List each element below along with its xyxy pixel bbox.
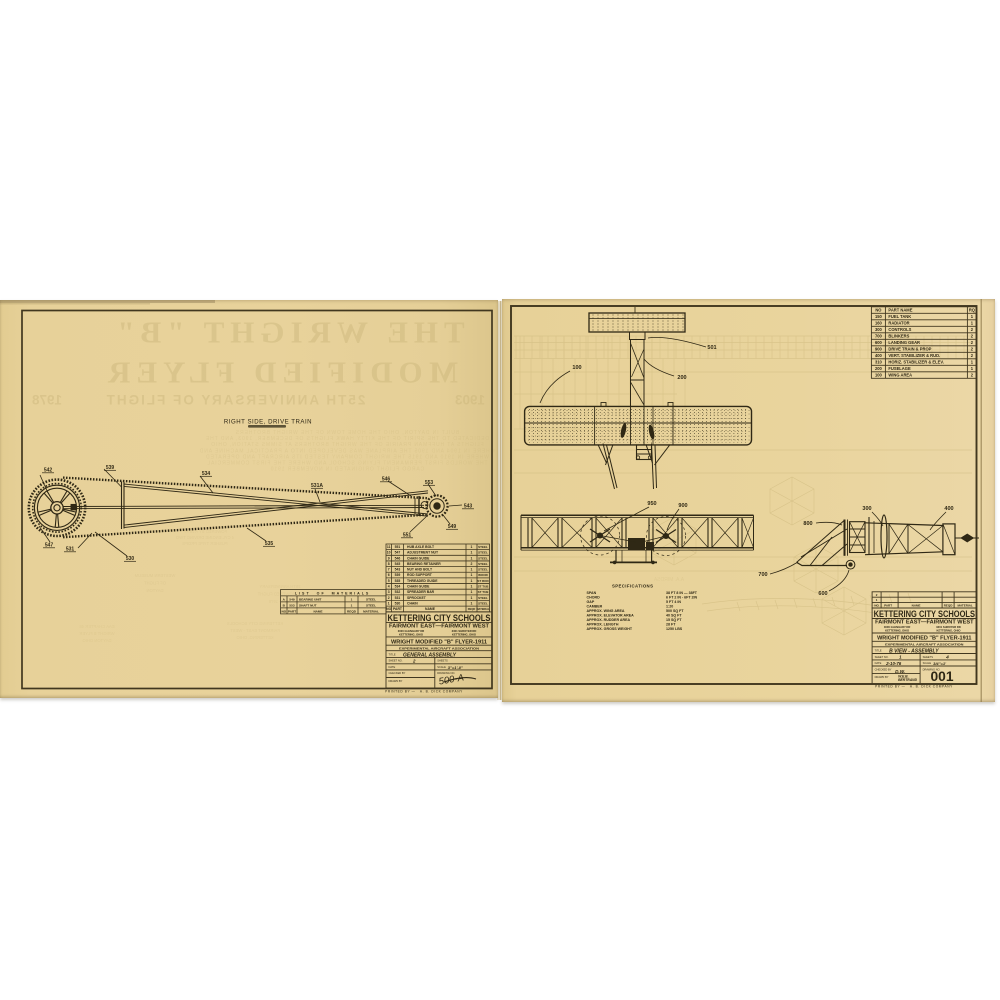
svg-text:549: 549 — [289, 597, 294, 601]
svg-text:1: 1 — [971, 360, 974, 365]
svg-text:WHERE IN 1904 AND 1905 THE AIR: WHERE IN 1904 AND 1905 THE AIRPLANE WAS … — [199, 448, 495, 454]
svg-text:FUSELAGE: FUSELAGE — [888, 366, 911, 371]
svg-text:STEEL: STEEL — [478, 545, 488, 549]
svg-text:ROD SUPPORT: ROD SUPPORT — [407, 573, 433, 577]
svg-text:REQD: REQD — [468, 607, 476, 611]
svg-text:10: 10 — [387, 551, 391, 555]
svg-text:PART NAME: PART NAME — [888, 308, 912, 313]
svg-text:25TH ANNIVERSARY: 25TH ANNIVERSARY — [259, 584, 300, 589]
svg-text:1: 1 — [471, 590, 473, 594]
svg-text:KETTERING CITY SCHOOLS: KETTERING CITY SCHOOLS — [227, 621, 283, 626]
svg-text:950: 950 — [647, 501, 656, 507]
svg-text:TITLE: TITLE — [389, 653, 396, 657]
svg-text:THE WRIGHT "B": THE WRIGHT "B" — [111, 315, 464, 350]
svg-text:DRAWN BY: DRAWN BY — [875, 675, 889, 679]
svg-text:KETTERING, OHIO: KETTERING, OHIO — [937, 629, 961, 633]
svg-text:PART: PART — [884, 604, 892, 608]
svg-text:400: 400 — [875, 353, 883, 358]
svg-text:553: 553 — [289, 603, 294, 607]
svg-text:545: 545 — [395, 562, 401, 566]
svg-text:400: 400 — [944, 506, 953, 512]
svg-text:1: 1 — [471, 551, 473, 555]
svg-text:CHAIN GUIDE: CHAIN GUIDE — [407, 556, 430, 560]
svg-text:1903: 1903 — [454, 393, 485, 408]
svg-text:531: 531 — [395, 596, 401, 600]
svg-text:3301 SHROYER RD: 3301 SHROYER RD — [936, 625, 961, 629]
svg-text:WHERE IN 1910 AND 1915 THE WRI: WHERE IN 1910 AND 1915 THE WRIGHT COMPAN… — [205, 454, 489, 460]
svg-text:GENERAL ASSEMBLY: GENERAL ASSEMBLY — [403, 652, 457, 658]
svg-text:KETTERING CITY SCHOOLS: KETTERING CITY SCHOOLS — [388, 613, 491, 623]
svg-text:STEEL: STEEL — [478, 556, 488, 560]
svg-text:900: 900 — [875, 347, 883, 352]
svg-text:1: 1 — [971, 314, 974, 319]
svg-text:HUB AXLE BOLT: HUB AXLE BOLT — [407, 545, 435, 549]
svg-text:LANDING GEAR: LANDING GEAR — [888, 340, 920, 345]
svg-text:RIGHT SIDE, DRIVE TRAIN: RIGHT SIDE, DRIVE TRAIN — [224, 419, 312, 426]
svg-text:2: 2 — [971, 353, 974, 358]
svg-text:WRIGHT MODIFIED "B" FLYER-1911: WRIGHT MODIFIED "B" FLYER-1911 — [391, 640, 487, 646]
svg-text:1: 1 — [971, 366, 974, 371]
svg-text:40 SQ FT: 40 SQ FT — [666, 614, 682, 618]
svg-text:700: 700 — [758, 572, 767, 578]
svg-text:APPROX. WING AREA: APPROX. WING AREA — [587, 609, 625, 613]
svg-text:2-10-76: 2-10-76 — [885, 661, 902, 666]
svg-text:NAME: NAME — [313, 609, 322, 613]
svg-text:FLIGHTS AT HUFFMAN PRAIRIE OF: FLIGHTS AT HUFFMAN PRAIRIE OF THE WRIGHT… — [210, 442, 483, 448]
svg-text:SHEET NO.: SHEET NO. — [389, 659, 403, 663]
svg-text:2: 2 — [471, 562, 473, 566]
svg-text:TITLE: TITLE — [875, 649, 882, 653]
svg-text:160: 160 — [875, 321, 883, 326]
svg-text:BLINKERS: BLINKERS — [888, 334, 909, 339]
svg-text:001: 001 — [930, 669, 953, 684]
svg-text:7: 7 — [388, 568, 390, 572]
svg-text:6 FT 2 IN - 6FT 2IN: 6 FT 2 IN - 6FT 2IN — [666, 596, 698, 600]
svg-text:STEEL: STEEL — [478, 568, 488, 572]
svg-text:GAP: GAP — [587, 600, 595, 604]
svg-text:1: 1 — [899, 655, 902, 660]
svg-text:FUEL TANK: FUEL TANK — [888, 314, 911, 319]
svg-text:ADJUSTMENT NUT: ADJUSTMENT NUT — [407, 551, 439, 555]
svg-text:APPROX. LENGTH: APPROX. LENGTH — [587, 623, 619, 627]
svg-text:3000 GLENGARY DR: 3000 GLENGARY DR — [884, 625, 910, 629]
svg-text:SHEETS: SHEETS — [923, 655, 934, 659]
svg-text:EXPERIMENTAL AIRCRAFT ASSOCIAT: EXPERIMENTAL AIRCRAFT ASSOCIATION — [399, 647, 479, 651]
svg-text:539: 539 — [395, 573, 401, 577]
svg-text:200: 200 — [677, 375, 686, 381]
svg-text:NO: NO — [875, 308, 882, 313]
svg-text:BUILT IN DAYTON, OHIO THE HOME: BUILT IN DAYTON, OHIO THE HOME TOWN OF T… — [235, 430, 459, 436]
svg-text:EAA CHAPTER 48: EAA CHAPTER 48 — [79, 624, 115, 629]
svg-text:ST ROD: ST ROD — [477, 579, 489, 583]
svg-text:3000 GLENGARY DR: 3000 GLENGARY DR — [398, 629, 424, 633]
svg-text:HORIZ. STABILIZER & ELEV.: HORIZ. STABILIZER & ELEV. — [888, 360, 944, 365]
svg-text:RQ: RQ — [969, 308, 976, 313]
svg-text:WOOD: WOOD — [478, 573, 488, 577]
svg-text:25TH ANNIVERSARY OF FLIGHT: 25TH ANNIVERSARY OF FLIGHT — [105, 393, 366, 408]
svg-text:4 CYL ENGINE DRIVING TWO: 4 CYL ENGINE DRIVING TWO — [175, 535, 234, 540]
svg-text:FAIRMONT EAST - WEST: FAIRMONT EAST - WEST — [230, 628, 280, 633]
svg-text:2: 2 — [876, 593, 878, 597]
svg-text:800: 800 — [803, 521, 812, 527]
svg-text:1250 LBS: 1250 LBS — [666, 627, 683, 631]
svg-text:547: 547 — [395, 551, 401, 555]
svg-text:SCALE: SCALE — [923, 661, 932, 665]
svg-text:3301 SHROYER RD: 3301 SHROYER RD — [452, 629, 477, 633]
svg-text:15 SQ FT: 15 SQ FT — [666, 618, 682, 622]
svg-text:5 FT 4 IN: 5 FT 4 IN — [666, 600, 681, 604]
svg-text:SPROCKET: SPROCKET — [407, 596, 427, 600]
svg-text:THE WORLDS FIRST PERMANENT FLY: THE WORLDS FIRST PERMANENT FLYING SCHOOL… — [206, 461, 487, 467]
svg-text:THREADED GUIDE: THREADED GUIDE — [407, 579, 438, 583]
svg-text:1: 1 — [471, 596, 473, 600]
svg-text:1: 1 — [351, 597, 353, 601]
svg-text:PUSHER TYPE PROPS: PUSHER TYPE PROPS — [182, 541, 228, 546]
svg-text:NUT AND BOLT: NUT AND BOLT — [407, 568, 433, 572]
svg-text:3: 3 — [388, 590, 390, 594]
svg-text:EXPERIMENTAL AIRCRAFT ASSOCIAT: EXPERIMENTAL AIRCRAFT ASSOCIATION — [885, 643, 963, 647]
svg-text:DATE: DATE — [389, 665, 396, 669]
svg-text:MATERIAL: MATERIAL — [363, 609, 379, 613]
svg-text:WRIGHT B FLYER: WRIGHT B FLYER — [79, 631, 114, 636]
svg-text:300: 300 — [875, 327, 883, 332]
svg-text:WING AREA: WING AREA — [888, 373, 912, 378]
svg-text:CHECKED BY: CHECKED BY — [875, 667, 892, 671]
svg-text:2: 2 — [971, 347, 974, 352]
svg-text:CARGO FLIGHT ORIGINATED IN NOV: CARGO FLIGHT ORIGINATED IN NOVEMBER 1910 — [270, 467, 424, 473]
svg-text:STEEL: STEEL — [478, 562, 488, 566]
svg-text:38 FT 8 IN — 38FT: 38 FT 8 IN — 38FT — [666, 591, 698, 595]
svg-text:3"=1'-0": 3"=1'-0" — [448, 665, 463, 670]
svg-text:CAMBER: CAMBER — [587, 605, 603, 609]
svg-text:530: 530 — [395, 602, 401, 606]
svg-text:SPAN: SPAN — [587, 591, 597, 595]
svg-text:KETTERING CITY SCHOOLS: KETTERING CITY SCHOOLS — [874, 609, 975, 619]
svg-text:1: 1 — [471, 545, 473, 549]
svg-text:MATERIAL: MATERIAL — [957, 604, 972, 608]
svg-text:BEARING RETAINER: BEARING RETAINER — [407, 562, 441, 566]
svg-text:VERT. STABILIZER & RUD.: VERT. STABILIZER & RUD. — [888, 353, 940, 358]
svg-text:600: 600 — [818, 591, 827, 597]
svg-text:2: 2 — [971, 373, 974, 378]
svg-text:100: 100 — [572, 365, 581, 371]
svg-text:PART: PART — [288, 609, 296, 613]
svg-text:NO: NO — [874, 604, 879, 608]
svg-text:KETTERING, OHIO: KETTERING, OHIO — [236, 635, 274, 640]
svg-text:2: 2 — [971, 340, 974, 345]
svg-text:535: 535 — [395, 579, 401, 583]
svg-text:1: 1 — [971, 321, 974, 326]
svg-text:MODIFIED FLYER: MODIFIED FLYER — [102, 355, 458, 390]
svg-text:PRINTED BY — A. B. DICK COMP: PRINTED BY — A. B. DICK COMPANY — [385, 690, 463, 694]
svg-text:B: B — [283, 603, 286, 607]
svg-text:150: 150 — [875, 314, 883, 319]
svg-text:11: 11 — [387, 545, 391, 549]
svg-text:APPROX. ELEVATOR AREA: APPROX. ELEVATOR AREA — [587, 614, 635, 618]
svg-text:STEEL: STEEL — [366, 603, 376, 607]
svg-text:300: 300 — [862, 506, 871, 512]
svg-text:CHECKED BY: CHECKED BY — [389, 671, 406, 675]
svg-text:CONTROLS: CONTROLS — [888, 327, 911, 332]
svg-text:RADIATOR: RADIATOR — [888, 321, 909, 326]
svg-text:100: 100 — [875, 373, 883, 378]
svg-text:534: 534 — [395, 585, 401, 589]
svg-text:1978: 1978 — [31, 393, 62, 408]
svg-text:2: 2 — [971, 334, 974, 339]
svg-text:SHEETS: SHEETS — [437, 659, 448, 663]
svg-text:STEEL: STEEL — [478, 602, 488, 606]
svg-text:501: 501 — [707, 345, 716, 351]
svg-text:WRIGHT MODIFIED "B" FLYER-1911: WRIGHT MODIFIED "B" FLYER-1911 — [877, 636, 971, 642]
svg-text:700: 700 — [875, 334, 883, 339]
svg-text:BERTRAND: BERTRAND — [898, 678, 918, 682]
svg-text:532: 532 — [395, 590, 401, 594]
svg-text:NAME: NAME — [425, 607, 436, 611]
svg-text:CHORD: CHORD — [587, 596, 601, 600]
svg-text:543: 543 — [395, 568, 401, 572]
svg-text:1: 1 — [471, 579, 473, 583]
svg-text:4: 4 — [388, 585, 390, 589]
svg-text:1: 1 — [471, 556, 473, 560]
svg-text:DATE: DATE — [875, 661, 882, 665]
svg-text:551: 551 — [395, 545, 401, 549]
svg-text:500 SQ FT: 500 SQ FT — [666, 609, 684, 613]
svg-text:SCALE: SCALE — [437, 665, 446, 669]
svg-text:3/4"=1': 3/4"=1' — [933, 661, 947, 666]
svg-text:KETTERING, OHIO: KETTERING, OHIO — [452, 632, 476, 636]
svg-text:PRINTED BY — A. B. DICK COMP: PRINTED BY — A. B. DICK COMPANY — [875, 685, 953, 689]
svg-text:SHAFT NUT: SHAFT NUT — [299, 603, 317, 607]
svg-text:DRAWN BY: DRAWN BY — [389, 679, 403, 683]
svg-text:OF FLIGHT: OF FLIGHT — [144, 581, 166, 586]
svg-text:FAIRMONT EAST—FAIRMONT WEST: FAIRMONT EAST—FAIRMONT WEST — [389, 623, 490, 629]
svg-text:8: 8 — [388, 562, 390, 566]
svg-text:1: 1 — [471, 585, 473, 589]
svg-text:DAYTON OHIO: DAYTON OHIO — [82, 638, 112, 643]
svg-text:B VIEW - ASSEMBLY: B VIEW - ASSEMBLY — [889, 648, 939, 654]
svg-text:310: 310 — [875, 360, 883, 365]
svg-text:STEEL: STEEL — [366, 597, 376, 601]
svg-text:546: 546 — [395, 556, 401, 560]
svg-text:9: 9 — [388, 556, 390, 560]
svg-text:1: 1 — [471, 568, 473, 572]
svg-text:1: 1 — [876, 598, 878, 602]
svg-text:1:20: 1:20 — [666, 605, 673, 609]
svg-text:MATERIAL: MATERIAL — [476, 607, 490, 611]
svg-text:SPREADER BAR: SPREADER BAR — [407, 590, 435, 594]
svg-text:2: 2 — [388, 596, 390, 600]
svg-text:WESTERN MUSEUM: WESTERN MUSEUM — [134, 573, 175, 578]
svg-text:DAYTON: DAYTON — [146, 588, 163, 593]
svg-text:NAME: NAME — [912, 604, 921, 608]
svg-text:ST TUB: ST TUB — [478, 590, 490, 594]
svg-text:4: 4 — [945, 655, 949, 661]
svg-text:SPECIFICATIONS: SPECIFICATIONS — [612, 584, 653, 589]
svg-text:1: 1 — [388, 602, 390, 606]
svg-text:CHAIN GUIDE: CHAIN GUIDE — [407, 585, 430, 589]
svg-text:BEARING UNIT: BEARING UNIT — [299, 597, 321, 601]
svg-text:STEEL: STEEL — [478, 551, 488, 555]
svg-text:LIST OF MATERIALS: LIST OF MATERIALS — [295, 591, 370, 595]
svg-text:REQD: REQD — [347, 609, 357, 613]
svg-text:600: 600 — [875, 340, 883, 345]
svg-text:STEEL: STEEL — [478, 596, 488, 600]
svg-text:1: 1 — [471, 602, 473, 606]
svg-text:A.A. MIRDSA: A.A. MIRDSA — [653, 577, 684, 583]
svg-text:28 FT: 28 FT — [666, 623, 676, 627]
svg-text:2: 2 — [412, 659, 416, 664]
svg-text:APPROX. GROSS WEIGHT: APPROX. GROSS WEIGHT — [587, 627, 633, 631]
svg-text:PART: PART — [393, 607, 403, 611]
svg-text:SHEET NO.: SHEET NO. — [875, 655, 889, 659]
svg-text:FAIRMONT EAST—FAIRMONT WEST: FAIRMONT EAST—FAIRMONT WEST — [875, 619, 974, 625]
svg-text:6: 6 — [388, 573, 390, 577]
svg-text:DRIVE TRAIN & PROP: DRIVE TRAIN & PROP — [888, 347, 931, 352]
svg-text:KETTERING, OHIO: KETTERING, OHIO — [399, 632, 423, 636]
svg-text:NO: NO — [281, 609, 286, 613]
svg-text:APPROX. RUDDER AREA: APPROX. RUDDER AREA — [587, 618, 631, 622]
svg-text:5: 5 — [388, 579, 390, 583]
svg-text:REQD: REQD — [944, 604, 954, 608]
svg-text:900: 900 — [678, 503, 687, 509]
svg-text:KETTERING, OHIO: KETTERING, OHIO — [885, 629, 909, 633]
svg-text:1: 1 — [351, 603, 353, 607]
svg-text:2: 2 — [971, 327, 974, 332]
svg-text:200: 200 — [875, 366, 883, 371]
svg-text:CHAIN: CHAIN — [407, 602, 418, 606]
svg-text:DEDICATED TO THE SPIRIT OF THE: DEDICATED TO THE SPIRIT OF THE KITTY HAW… — [205, 436, 489, 442]
svg-text:NO: NO — [386, 607, 391, 611]
svg-text:1: 1 — [471, 573, 473, 577]
svg-text:ST TUB: ST TUB — [478, 585, 490, 589]
